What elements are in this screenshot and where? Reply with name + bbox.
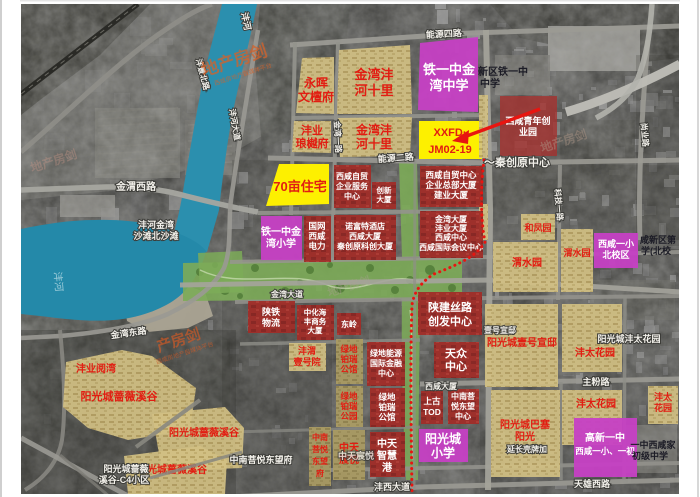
svg-text:西咸自贸中心: 西咸自贸中心 — [425, 170, 477, 180]
svg-text:陕铁: 陕铁 — [262, 306, 280, 317]
svg-text:延长壳牌加: 延长壳牌加 — [506, 444, 547, 454]
svg-text:TOD: TOD — [423, 407, 441, 417]
svg-text:湾中学: 湾中学 — [429, 78, 468, 93]
svg-text:西咸自贸: 西咸自贸 — [336, 171, 368, 181]
svg-text:初级中学: 初级中学 — [632, 450, 668, 461]
svg-text:天众: 天众 — [445, 346, 468, 360]
svg-text:中天: 中天 — [377, 437, 398, 450]
svg-text:金湾沣: 金湾沣 — [353, 67, 393, 82]
svg-text:金湾沣: 金湾沣 — [355, 122, 392, 137]
svg-text:中心: 中心 — [455, 411, 471, 421]
svg-text:建业大厦: 建业大厦 — [433, 190, 469, 200]
svg-text:中心: 中心 — [445, 359, 467, 373]
svg-text:渭水园: 渭水园 — [563, 247, 590, 258]
svg-text:沣太花园: 沣太花园 — [576, 397, 616, 410]
svg-text:铂瑞: 铂瑞 — [378, 402, 396, 412]
svg-text:金湾大道: 金湾大道 — [270, 289, 303, 299]
svg-text:东望: 东望 — [312, 456, 328, 466]
svg-text:沣西大道: 沣西大道 — [374, 481, 410, 492]
svg-text:阳光城壹号宣邸: 阳光城壹号宣邸 — [487, 336, 557, 349]
svg-text:琅樾府: 琅樾府 — [296, 136, 329, 150]
svg-text:铁一中金: 铁一中金 — [261, 225, 302, 238]
svg-text:中心: 中心 — [344, 191, 360, 201]
svg-text:沣太花园: 沣太花园 — [575, 346, 615, 359]
svg-text:国际金融: 国际金融 — [370, 358, 402, 368]
svg-text:西咸中心: 西咸中心 — [435, 232, 467, 242]
svg-text:西咸: 西咸 — [308, 231, 326, 241]
svg-text:丰商务: 丰商务 — [304, 316, 327, 326]
svg-text:西咸大厦: 西咸大厦 — [425, 381, 458, 391]
svg-text:北校区: 北校区 — [602, 249, 629, 260]
svg-text:壹号宣邸: 壹号宣邸 — [484, 325, 516, 335]
svg-text:西咸大厦: 西咸大厦 — [349, 231, 382, 241]
svg-text:智慧: 智慧 — [377, 449, 397, 462]
svg-text:西咸国际会议中心: 西咸国际会议中心 — [419, 242, 483, 252]
svg-text:府: 府 — [316, 468, 324, 478]
svg-text:阳光城: 阳光城 — [425, 431, 461, 446]
svg-text:公园: 公园 — [340, 411, 357, 421]
svg-text:沣业大厦: 沣业大厦 — [435, 223, 468, 233]
svg-text:菩悦: 菩悦 — [312, 444, 328, 454]
svg-text:阳光城蔷薇: 阳光城蔷薇 — [103, 463, 148, 474]
svg-text:70亩住宅: 70亩住宅 — [273, 179, 326, 194]
svg-text:上古: 上古 — [423, 396, 441, 406]
svg-text:主粉路: 主粉路 — [582, 376, 610, 387]
svg-text:阳光城蔷薇溪谷: 阳光城蔷薇溪谷 — [169, 426, 240, 439]
svg-text:沣渭: 沣渭 — [298, 345, 316, 356]
svg-text:沣业: 沣业 — [301, 123, 323, 137]
svg-text:咸新区第: 咸新区第 — [640, 234, 676, 245]
svg-text:金渭西路: 金渭西路 — [115, 180, 157, 193]
svg-text:绿地: 绿地 — [340, 344, 358, 354]
svg-text:沣河: 沣河 — [51, 271, 65, 292]
svg-text:中天宸悦: 中天宸悦 — [338, 450, 374, 461]
svg-text:物流: 物流 — [262, 317, 280, 328]
svg-text:业园: 业园 — [519, 126, 537, 137]
svg-text:河十里: 河十里 — [355, 136, 392, 151]
svg-text:东岭: 东岭 — [341, 319, 357, 329]
svg-text:西咸一小: 西咸一小 — [598, 238, 634, 249]
svg-text:新区铁一中: 新区铁一中 — [478, 65, 528, 78]
svg-text:阳光城蔷薇溪谷: 阳光城蔷薇溪谷 — [81, 389, 159, 403]
svg-text:电力: 电力 — [308, 241, 325, 251]
svg-text:绿地: 绿地 — [340, 391, 358, 401]
svg-text:能源四路: 能源四路 — [426, 27, 464, 40]
svg-text:铂瑞: 铂瑞 — [340, 401, 358, 411]
svg-text:JM02-19: JM02-19 — [428, 144, 471, 156]
svg-text:沣河金湾: 沣河金湾 — [138, 219, 174, 230]
svg-text:文檀府: 文檀府 — [298, 89, 334, 104]
svg-text:沣太: 沣太 — [654, 391, 673, 402]
svg-text:小学: 小学 — [431, 445, 455, 460]
svg-text:河十里: 河十里 — [354, 83, 393, 98]
svg-text:金湾大厦: 金湾大厦 — [434, 214, 468, 224]
svg-text:沙滩北沙滩: 沙滩北沙滩 — [133, 230, 178, 241]
svg-text:公馆: 公馆 — [378, 412, 396, 422]
svg-text:中南菩悦东望府: 中南菩悦东望府 — [229, 454, 292, 465]
svg-text:阳光: 阳光 — [515, 430, 535, 443]
svg-text:企业总部大厦: 企业总部大厦 — [424, 180, 477, 190]
svg-text:诺富特酒店: 诺富特酒店 — [345, 221, 385, 231]
svg-text:悦东望: 悦东望 — [451, 401, 475, 411]
svg-text:～秦创原中心: ～秦创原中心 — [484, 155, 550, 169]
svg-text:国网: 国网 — [308, 221, 325, 231]
svg-text:中南: 中南 — [312, 432, 328, 442]
svg-text:中南菩: 中南菩 — [451, 391, 475, 401]
svg-text:大厦: 大厦 — [308, 325, 323, 335]
svg-text:中心: 中心 — [378, 368, 394, 378]
svg-text:阳光城沣太花园: 阳光城沣太花园 — [597, 333, 660, 344]
svg-text:金湾一路: 金湾一路 — [332, 120, 344, 154]
svg-text:大厦: 大厦 — [377, 194, 392, 204]
svg-text:西咸一小、一初: 西咸一小、一初 — [575, 446, 635, 456]
svg-text:绿地能源: 绿地能源 — [370, 348, 402, 358]
svg-text:创发中心: 创发中心 — [427, 314, 472, 328]
svg-text:和凤园: 和凤园 — [523, 222, 551, 233]
svg-text:花园: 花园 — [654, 402, 672, 413]
svg-text:创新: 创新 — [376, 185, 392, 195]
svg-text:湾小学: 湾小学 — [266, 237, 296, 250]
svg-text:绿地: 绿地 — [378, 392, 396, 402]
svg-text:中化海: 中化海 — [304, 307, 327, 317]
svg-text:永晖: 永晖 — [303, 75, 328, 90]
svg-text:公馆: 公馆 — [340, 364, 358, 374]
svg-text:中学: 中学 — [480, 77, 500, 90]
svg-text:港: 港 — [382, 461, 393, 474]
svg-text:沣业阅湾: 沣业阅湾 — [76, 362, 116, 375]
svg-text:一中西咸家: 一中西咸家 — [630, 439, 676, 450]
svg-text:企业服务: 企业服务 — [335, 181, 369, 191]
svg-text:学(北校: 学(北校 — [641, 245, 672, 256]
svg-text:天雄西路: 天雄西路 — [574, 478, 611, 489]
svg-text:陕建丝路: 陕建丝路 — [428, 300, 473, 314]
svg-text:铁一中金: 铁一中金 — [422, 62, 476, 77]
svg-text:秦创原科创大厦: 秦创原科创大厦 — [336, 241, 394, 251]
svg-text:阳光城巴塞: 阳光城巴塞 — [500, 418, 551, 431]
svg-text:溪谷-C4小区: 溪谷-C4小区 — [99, 474, 150, 485]
svg-text:渭水园: 渭水园 — [512, 256, 542, 269]
svg-text:壹号院: 壹号院 — [293, 356, 320, 367]
svg-text:铂瑞: 铂瑞 — [340, 354, 358, 364]
svg-text:高新一中: 高新一中 — [585, 431, 625, 444]
